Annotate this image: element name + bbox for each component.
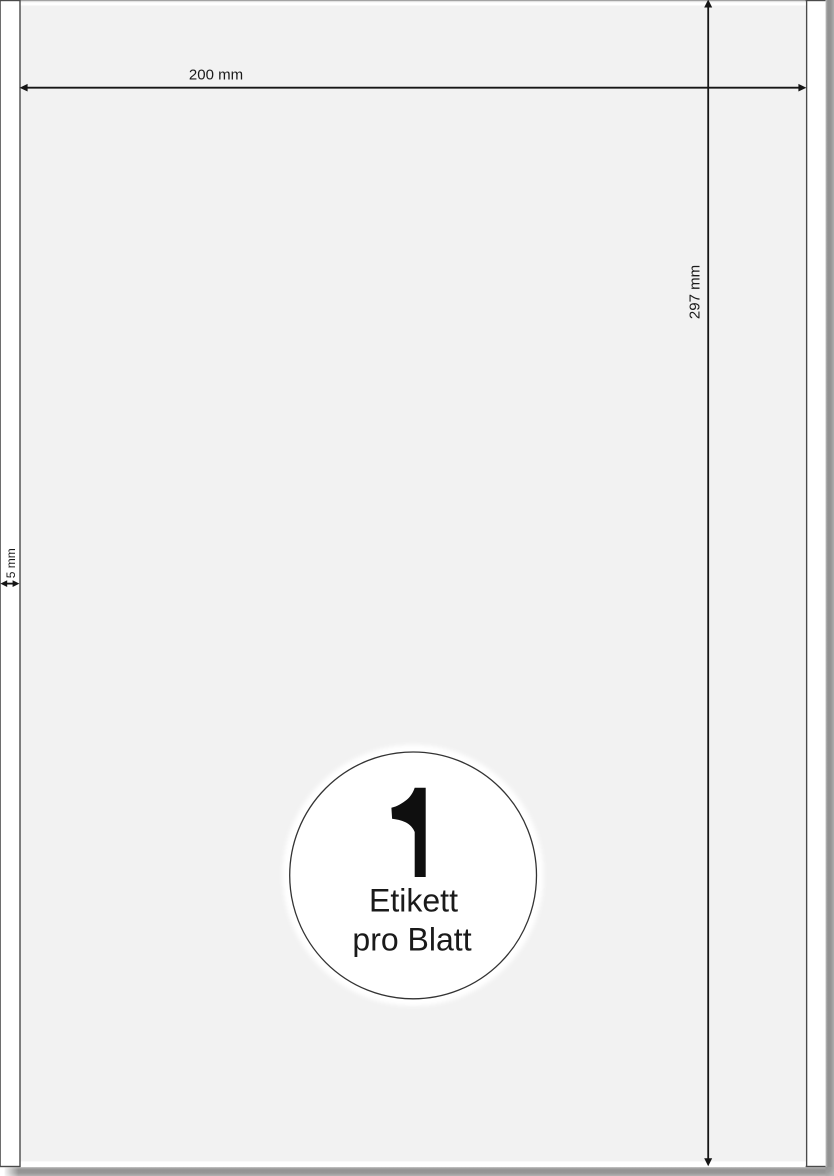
svg-text:297 mm: 297 mm — [686, 265, 703, 319]
svg-text:Etikett: Etikett — [369, 882, 458, 918]
svg-text:pro Blatt: pro Blatt — [352, 921, 471, 957]
svg-text:5 mm: 5 mm — [4, 548, 18, 578]
svg-text:200 mm: 200 mm — [189, 67, 243, 84]
